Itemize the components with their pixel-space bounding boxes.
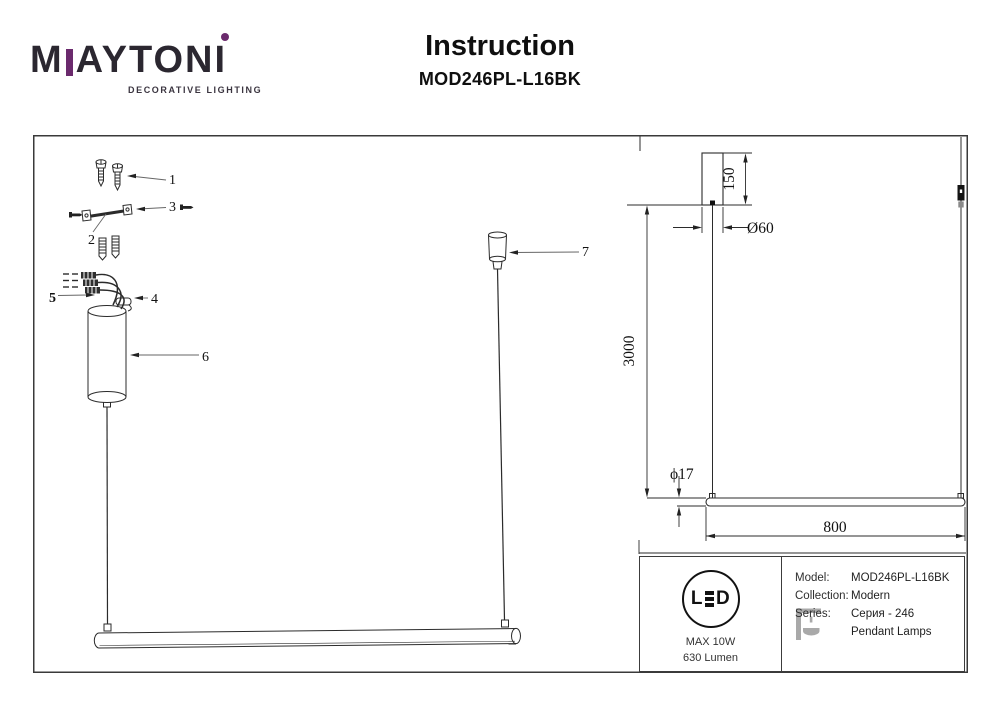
svg-text:3000: 3000 [621, 335, 638, 366]
instruction-sheet: M AYTON I DECORATIVE LIGHTING Instructio… [0, 0, 1000, 707]
terminal-block-part5-icon [63, 272, 100, 294]
spec-row-series2: Pendant Lamps [795, 626, 964, 638]
lamp-tube-icon [94, 620, 520, 648]
part-label-3: 3 [136, 200, 176, 215]
svg-text:150: 150 [721, 167, 738, 191]
exploded-view: 1 2 [49, 160, 589, 648]
part-label-6: 6 [130, 350, 209, 365]
spec-row-series: Series: Серия - 246 [795, 608, 964, 620]
dim-150: 150 [721, 153, 752, 205]
cable-gripper-part7-icon [489, 232, 507, 620]
logo-letter-i: I [214, 43, 227, 77]
dim-60: Ø60 [673, 207, 774, 237]
model-number: MOD246PL-L16BK [350, 69, 650, 90]
svg-text:ϕ17: ϕ17 [670, 466, 694, 483]
dim-cable-right [958, 137, 965, 498]
led-letter-d: D [716, 588, 730, 610]
svg-text:3: 3 [169, 200, 176, 215]
svg-text:2: 2 [88, 233, 95, 248]
bracket-part2-icon [69, 205, 132, 222]
svg-text:5: 5 [49, 291, 56, 306]
logo-accent-bar [66, 49, 73, 76]
lumen: 630 Lumen [683, 652, 738, 664]
svg-text:Ø60: Ø60 [747, 220, 774, 237]
spec-row-collection: Collection: Modern [795, 590, 964, 602]
logo-letter-m: M [30, 43, 64, 77]
specs-cell: Model: MOD246PL-L16BK Collection: Modern… [782, 557, 964, 671]
dim-bar [647, 494, 965, 507]
max-power: MAX 10W [686, 636, 736, 648]
logo-letters: AYTON [76, 43, 215, 77]
svg-text:4: 4 [151, 292, 158, 307]
screws-part1-icon [96, 160, 123, 190]
dim-canopy [627, 153, 723, 498]
svg-text:1: 1 [169, 173, 176, 188]
svg-text:6: 6 [202, 350, 209, 365]
screw-part3-icon [180, 205, 194, 211]
logo-dot-icon [221, 33, 229, 41]
dim-800: 800 [706, 507, 965, 541]
led-letter-e-icon [705, 591, 714, 606]
part-label-7: 7 [509, 245, 589, 260]
dim-17: ϕ17 [670, 466, 694, 527]
svg-text:800: 800 [823, 519, 847, 536]
led-letter-l: L [691, 588, 703, 610]
title-block: Instruction MOD246PL-L16BK [350, 30, 650, 90]
dimension-drawing: 150 Ø60 3000 [621, 137, 966, 555]
svg-text:7: 7 [582, 245, 589, 260]
spec-table: L D MAX 10W 630 Lumen Model: MOD246PL-L1… [639, 556, 965, 672]
canopy-part6-icon [88, 306, 126, 625]
brand-tagline: DECORATIVE LIGHTING [128, 85, 262, 95]
led-logo: L D [682, 570, 740, 628]
page-title: Instruction [350, 30, 650, 62]
anchor-dowels-icon [99, 236, 119, 260]
part-label-4: 4 [134, 292, 158, 307]
led-cell: L D MAX 10W 630 Lumen [640, 557, 782, 671]
wires-icon [96, 274, 124, 309]
spec-row-model: Model: MOD246PL-L16BK [795, 572, 964, 584]
part-label-1: 1 [127, 173, 176, 188]
dim-3000: 3000 [621, 206, 649, 498]
maytoni-logo: M AYTON I [30, 43, 227, 77]
